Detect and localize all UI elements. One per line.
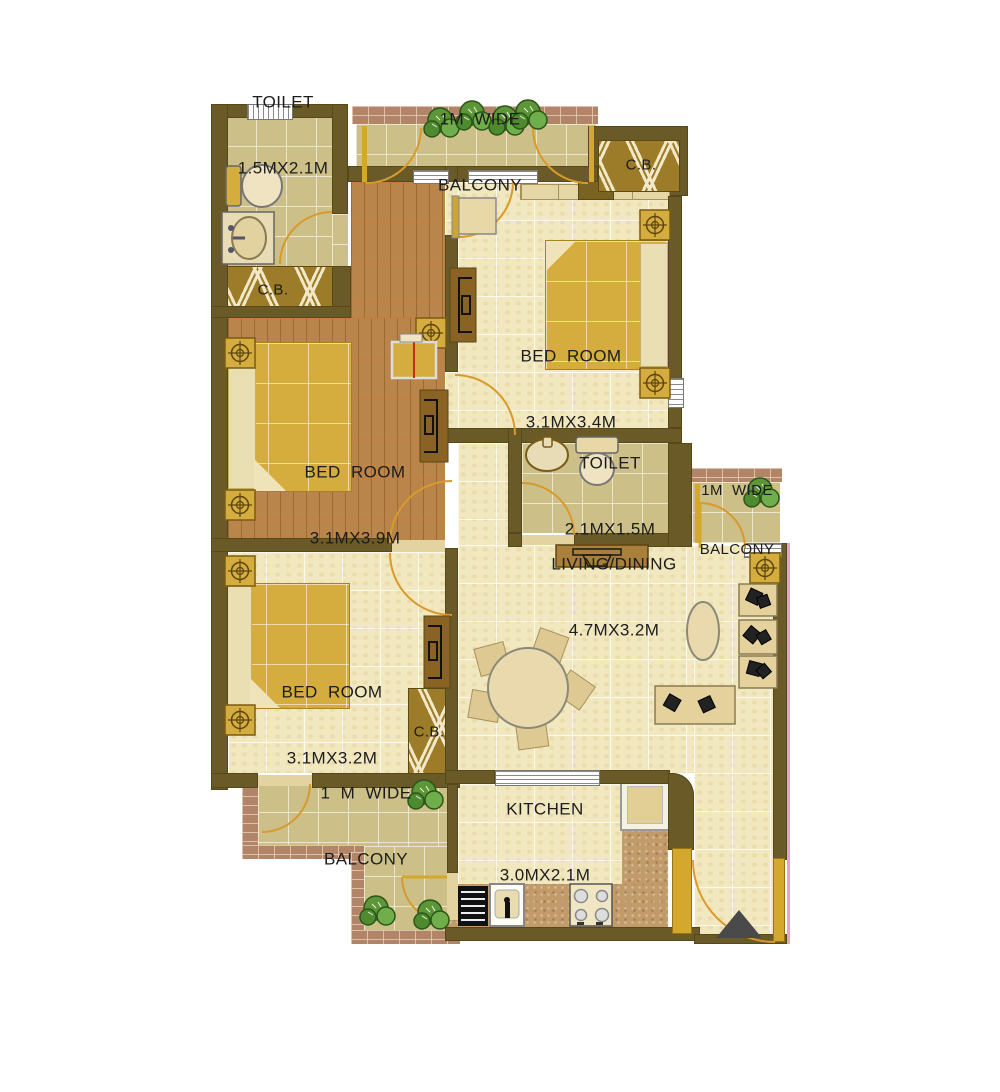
room-name: TOILET (565, 453, 656, 475)
wall (211, 773, 258, 788)
label-cupboard-entrance: C.B. (626, 116, 657, 214)
balcony-bottom-trim-bottom (351, 930, 460, 944)
wall (445, 548, 458, 775)
cupboard-label: C.B. (414, 722, 445, 742)
room-name: BALCONY (700, 540, 775, 560)
wall (668, 773, 694, 850)
floor-plan-page: { "labels": { "toilet_top": {"line1": "T… (0, 0, 1000, 1092)
kitchen-counter-right (622, 827, 668, 884)
window (668, 378, 684, 408)
bed-fold-corner (254, 459, 286, 491)
door-opening (445, 372, 458, 428)
room-name: BALCONY (438, 175, 522, 197)
floor-entry-corridor (694, 545, 780, 936)
wall (598, 770, 670, 784)
room-dimensions: 4.7MX3.2M (551, 620, 676, 642)
plot-boundary-line (787, 543, 790, 944)
room-name: BED ROOM (282, 682, 383, 704)
bed-pillows (226, 586, 252, 706)
room-label-balcony-bottom: 1 M WIDE BALCONY (321, 739, 412, 916)
door-opening (332, 214, 348, 266)
cupboard-label: C.B. (258, 280, 289, 300)
fridge (620, 780, 672, 831)
bed-pillows (228, 345, 256, 489)
room-name: LIVING/DINING (551, 554, 676, 576)
balcony-bottom-trim-left (242, 778, 258, 852)
room-name: 1M WIDE (438, 109, 522, 131)
floor-hall-left (458, 443, 508, 545)
floor-plan: TOILET 1.5MX2.1M 1M WIDE BALCONY C.B. C.… (0, 0, 1000, 1092)
room-name: BED ROOM (521, 346, 622, 368)
room-name: BALCONY (321, 849, 412, 871)
room-label-bedroom-mid-left: BED ROOM 3.1MX3.9M (305, 418, 406, 595)
room-label-balcony-right: 1M WIDE BALCONY (700, 442, 775, 598)
wall (773, 543, 787, 860)
door-jamb (362, 126, 367, 182)
room-name: KITCHEN (500, 799, 591, 821)
door-leaf-kitchen (672, 848, 692, 934)
wall (445, 235, 458, 372)
room-name: 1 M WIDE (321, 783, 412, 805)
bed-fold-corner (250, 678, 280, 708)
wall (332, 104, 348, 214)
wall (508, 533, 522, 547)
wall (447, 784, 458, 873)
door-leaf-entrance (773, 858, 785, 942)
fridge-top (627, 786, 663, 824)
wall (445, 770, 495, 784)
room-label-toilet-top: TOILET 1.5MX2.1M (238, 48, 329, 225)
room-name: 1M WIDE (700, 481, 775, 501)
door-jamb (589, 126, 594, 182)
room-dimensions: 1.5MX2.1M (238, 158, 329, 180)
label-cupboard-top-left: C.B. (258, 241, 289, 339)
wall (211, 104, 228, 790)
room-name: BED ROOM (305, 462, 406, 484)
room-dimensions: 3.0MX2.1M (500, 865, 591, 887)
room-name: TOILET (238, 92, 329, 114)
room-label-kitchen: KITCHEN 3.0MX2.1M (500, 755, 591, 932)
room-dimensions: 3.1MX3.9M (305, 528, 406, 550)
bed-fold-corner (546, 241, 576, 271)
cupboard-label: C.B. (626, 155, 657, 175)
bed-pillows (640, 243, 668, 367)
room-label-balcony-top: 1M WIDE BALCONY (438, 65, 522, 242)
room-label-living-dining: LIVING/DINING 4.7MX3.2M (551, 510, 676, 687)
door-opening (447, 873, 458, 920)
label-cupboard-bedroom-bottom: C.B. (414, 683, 445, 781)
